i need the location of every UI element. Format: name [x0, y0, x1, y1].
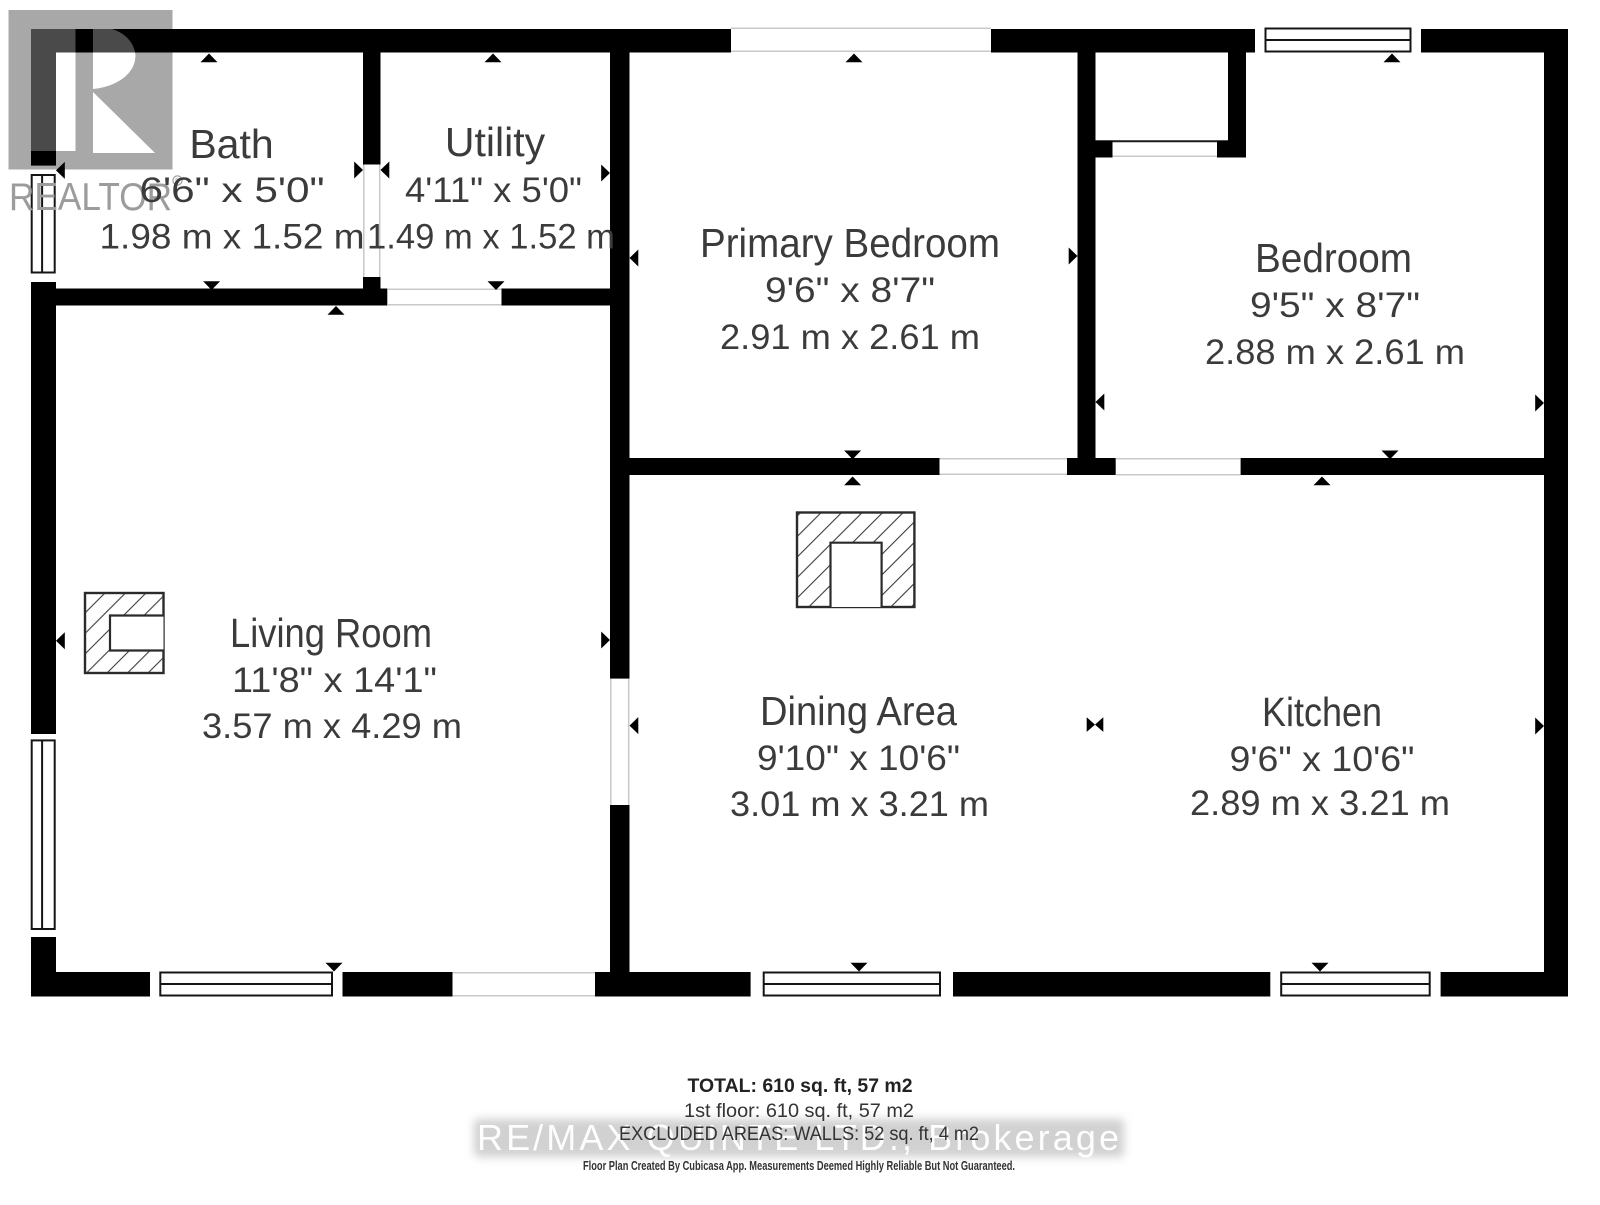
svg-text:11'8" x 14'1": 11'8" x 14'1"	[232, 661, 437, 700]
svg-text:1.49 m x 1.52 m: 1.49 m x 1.52 m	[367, 218, 615, 257]
svg-text:9'6" x 8'7": 9'6" x 8'7"	[765, 271, 935, 310]
svg-text:Utility: Utility	[445, 119, 546, 165]
svg-text:6'6" x 5'0": 6'6" x 5'0"	[140, 171, 325, 210]
svg-text:Dining Area: Dining Area	[760, 688, 957, 734]
svg-text:TOTAL: 610 sq. ft, 57 m2: TOTAL: 610 sq. ft, 57 m2	[688, 1076, 913, 1097]
svg-text:9'5" x 8'7": 9'5" x 8'7"	[1250, 286, 1420, 325]
svg-text:Bath: Bath	[189, 121, 273, 167]
svg-text:Primary Bedroom: Primary Bedroom	[700, 220, 1000, 266]
svg-text:EXCLUDED AREAS: WALLS: 52 sq.: EXCLUDED AREAS: WALLS: 52 sq. ft, 4 m2	[619, 1124, 979, 1145]
svg-text:3.01 m x 3.21 m: 3.01 m x 3.21 m	[730, 785, 989, 824]
svg-text:2.89 m x 3.21 m: 2.89 m x 3.21 m	[1190, 784, 1450, 823]
svg-text:9'10" x 10'6": 9'10" x 10'6"	[757, 739, 960, 778]
svg-text:9'6" x 10'6": 9'6" x 10'6"	[1230, 740, 1415, 779]
svg-text:4'11" x 5'0": 4'11" x 5'0"	[405, 171, 582, 210]
svg-text:2.91 m x 2.61 m: 2.91 m x 2.61 m	[720, 318, 980, 357]
svg-text:3.57 m x 4.29 m: 3.57 m x 4.29 m	[202, 707, 462, 746]
svg-text:1st floor: 610 sq. ft, 57 m2: 1st floor: 610 sq. ft, 57 m2	[684, 1101, 914, 1122]
svg-text:1.98 m x 1.52 m: 1.98 m x 1.52 m	[100, 218, 365, 257]
svg-text:Bedroom: Bedroom	[1255, 235, 1412, 281]
svg-text:2.88 m x 2.61 m: 2.88 m x 2.61 m	[1205, 333, 1465, 372]
svg-text:Floor Plan Created By Cubicasa: Floor Plan Created By Cubicasa App. Meas…	[583, 1158, 1015, 1173]
svg-text:Kitchen: Kitchen	[1262, 689, 1382, 735]
svg-text:Living Room: Living Room	[230, 610, 432, 656]
